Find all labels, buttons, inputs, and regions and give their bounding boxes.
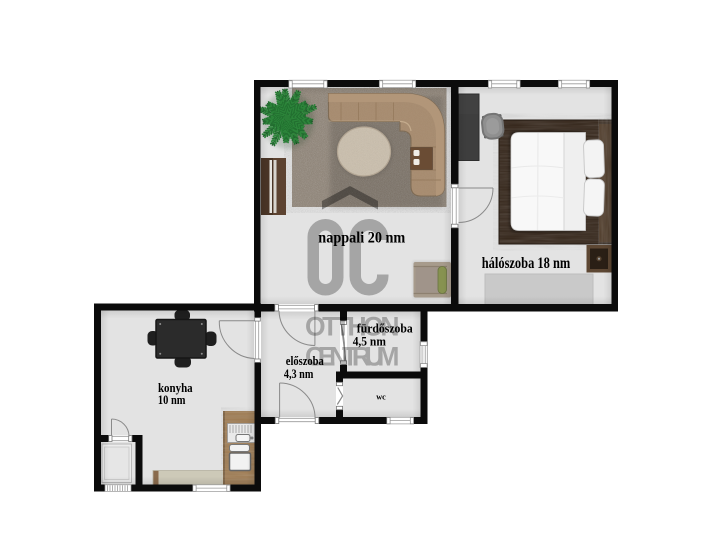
svg-text:CENTRUM: CENTRUM bbox=[305, 342, 401, 372]
svg-text:OTTHON: OTTHON bbox=[305, 312, 401, 342]
svg-text:hálószoba 18 nm: hálószoba 18 nm bbox=[482, 255, 571, 272]
svg-text:10 nm: 10 nm bbox=[158, 392, 186, 407]
svg-text:wc: wc bbox=[376, 392, 386, 402]
